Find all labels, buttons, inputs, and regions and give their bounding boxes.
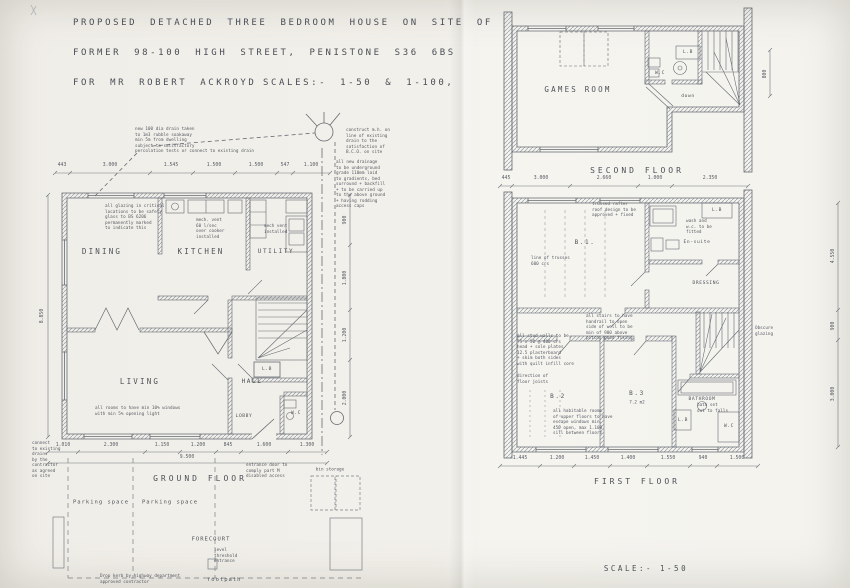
dim-gf-bot-6: 1.300 xyxy=(300,443,314,449)
room-label-lb-second: L.B xyxy=(683,50,693,56)
room-label-hall: HALL xyxy=(242,378,263,386)
room-label-lobby: LOBBY xyxy=(236,414,253,420)
note-handrail: all stairs to have handrail to open side… xyxy=(586,314,633,342)
note-glazing: all glazing in critical locations to be … xyxy=(105,204,165,232)
note-wash-wc: wash and w.c. to be fitted xyxy=(686,219,712,236)
note-bath-falls: bath set out to falls xyxy=(697,403,728,414)
title-line-3: FOR MR ROBERT ACKROYD xyxy=(73,78,256,90)
dim-gf-top-5: 547 xyxy=(281,163,290,169)
dim-gf-right-2: 1.200 xyxy=(343,328,349,342)
dim-gf-top-2: 1.545 xyxy=(164,163,178,169)
note-floor-joists: direction of floor joists xyxy=(517,374,548,385)
note-soakaway: new 100 dia drain taken to 1m3 rubble so… xyxy=(135,127,254,155)
parking-space-1: Parking space xyxy=(73,499,129,506)
dim-sf-4: 2.350 xyxy=(703,176,717,182)
dim-gf-top-6: 1.100 xyxy=(304,163,318,169)
room-label-ensuite: En-suite xyxy=(684,240,711,246)
room-label-lb-ground: L.B xyxy=(262,367,272,373)
drawing-sheet: PROPOSED DETACHED THREE BEDROOM HOUSE ON… xyxy=(0,0,850,588)
note-mech-vent: mech. vent 60 l/sec over cooker installe… xyxy=(196,218,224,240)
dim-gf-bot-5: 1.600 xyxy=(257,443,271,449)
room-label-wc-first: W.C xyxy=(724,424,734,430)
dim-gf-bot-0: 1.010 xyxy=(56,443,70,449)
dim-gf-right-3: 2.000 xyxy=(343,391,349,405)
room-label-lb-first-top: L.B xyxy=(712,208,722,214)
note-drop-kerb: Drop kerb by highway department approved… xyxy=(100,574,180,585)
dim-sf-1: 3.000 xyxy=(534,176,548,182)
title-line-1: PROPOSED DETACHED THREE BEDROOM HOUSE ON… xyxy=(73,18,493,30)
dim-ff-bot-5: 940 xyxy=(699,456,708,462)
room-label-lb-first-bot: L.B xyxy=(678,418,688,424)
note-living-windows: all rooms to have min 10% windows with m… xyxy=(95,406,180,417)
room-label-b1: B.1. xyxy=(575,239,596,247)
first-floor-plan xyxy=(498,190,840,468)
dim-gf-bot-2: 1.150 xyxy=(155,443,169,449)
dim-gf-top-4: 1.500 xyxy=(249,163,263,169)
room-label-dressing: DRESSING xyxy=(693,281,720,287)
ground-floor-plan xyxy=(46,112,362,578)
note-manhole: construct m.h. on line of existing drain… xyxy=(346,128,390,156)
room-label-b3-area: 7.2 m2 xyxy=(629,400,645,406)
room-label-b3: B.3 xyxy=(629,390,645,398)
dim-sf-0: 445 xyxy=(502,176,511,182)
room-label-wc-ground: W.C xyxy=(291,411,301,417)
second-floor-title: SECOND FLOOR xyxy=(590,166,684,176)
room-label-b2: B.2 xyxy=(550,393,566,401)
note-obscure-glazing: Obscure glazing xyxy=(755,326,773,337)
dim-gf-total: 9.500 xyxy=(180,455,194,461)
room-label-utility: UTILITY xyxy=(258,248,295,256)
dim-ff-bot-2: 1.450 xyxy=(585,456,599,462)
dim-ff-bot-6: 1.500 xyxy=(730,456,744,462)
dim-ff-bot-1: 1.200 xyxy=(550,456,564,462)
dim-ff-right-1: 900 xyxy=(831,322,837,331)
dim-gf-right-1: 1.800 xyxy=(343,271,349,285)
note-line-of-trusses: line of trusses 600 crs xyxy=(531,256,570,267)
dim-sf-right: 800 xyxy=(763,70,769,79)
first-floor-title: FIRST FLOOR xyxy=(594,477,680,487)
room-label-dining: DINING xyxy=(82,247,122,257)
footpath-label: footpath xyxy=(207,577,242,584)
dim-gf-left: 8.850 xyxy=(40,309,46,323)
room-label-games-room: GAMES ROOM xyxy=(544,85,611,95)
second-floor-plan xyxy=(498,8,772,188)
note-stud-walls: all stud walls to be 75 x 50 @ 400 crs h… xyxy=(517,334,574,367)
note-truss-roof: trussed rafter roof design to be approve… xyxy=(592,202,636,219)
room-label-kitchen: KITCHEN xyxy=(177,247,224,257)
dim-ff-right-2: 3.000 xyxy=(831,387,837,401)
dim-ff-bot-4: 1.550 xyxy=(661,456,675,462)
dim-gf-right-0: 900 xyxy=(343,216,349,225)
forecourt-label: FORECOURT xyxy=(192,536,231,543)
dim-gf-top-0: 443 xyxy=(58,163,67,169)
title-scales: SCALES:- 1-50 & 1-100, xyxy=(263,78,454,90)
dim-sf-3: 1.000 xyxy=(648,176,662,182)
dim-sf-2: 2.660 xyxy=(597,176,611,182)
title-line-2: FORMER 98-100 HIGH STREET, PENISTONE S36… xyxy=(73,48,456,60)
room-label-wc-second: W.C xyxy=(655,71,665,77)
note-escape-windows: all habitable rooms of upper floors to h… xyxy=(553,409,613,437)
dim-ff-bot-0: 1.445 xyxy=(513,456,527,462)
dim-gf-bot-3: 1.200 xyxy=(191,443,205,449)
note-entrance-door: entrance door to comply part M disabled … xyxy=(246,463,287,480)
stair-down-label: down xyxy=(681,94,694,100)
note-drainage: all new drainage to be underground grade… xyxy=(336,160,385,210)
dim-gf-top-1: 3.000 xyxy=(103,163,117,169)
dim-gf-bot-1: 2.300 xyxy=(104,443,118,449)
scale-note: SCALE:- 1-50 xyxy=(604,564,688,574)
ground-floor-title: GROUND FLOOR xyxy=(153,474,247,484)
dim-gf-bot-4: 845 xyxy=(224,443,233,449)
note-threshold: level threshold entrance xyxy=(214,548,237,565)
dim-gf-top-3: 1.500 xyxy=(207,163,221,169)
room-label-living: LIVING xyxy=(120,377,160,387)
bin-storage-label: bin storage xyxy=(316,467,344,473)
parking-space-2: Parking space xyxy=(142,499,198,506)
dim-ff-bot-3: 1.400 xyxy=(621,456,635,462)
dim-ff-right-0: 4.550 xyxy=(831,249,837,263)
note-utility-vent: mech vent installed xyxy=(264,224,287,235)
